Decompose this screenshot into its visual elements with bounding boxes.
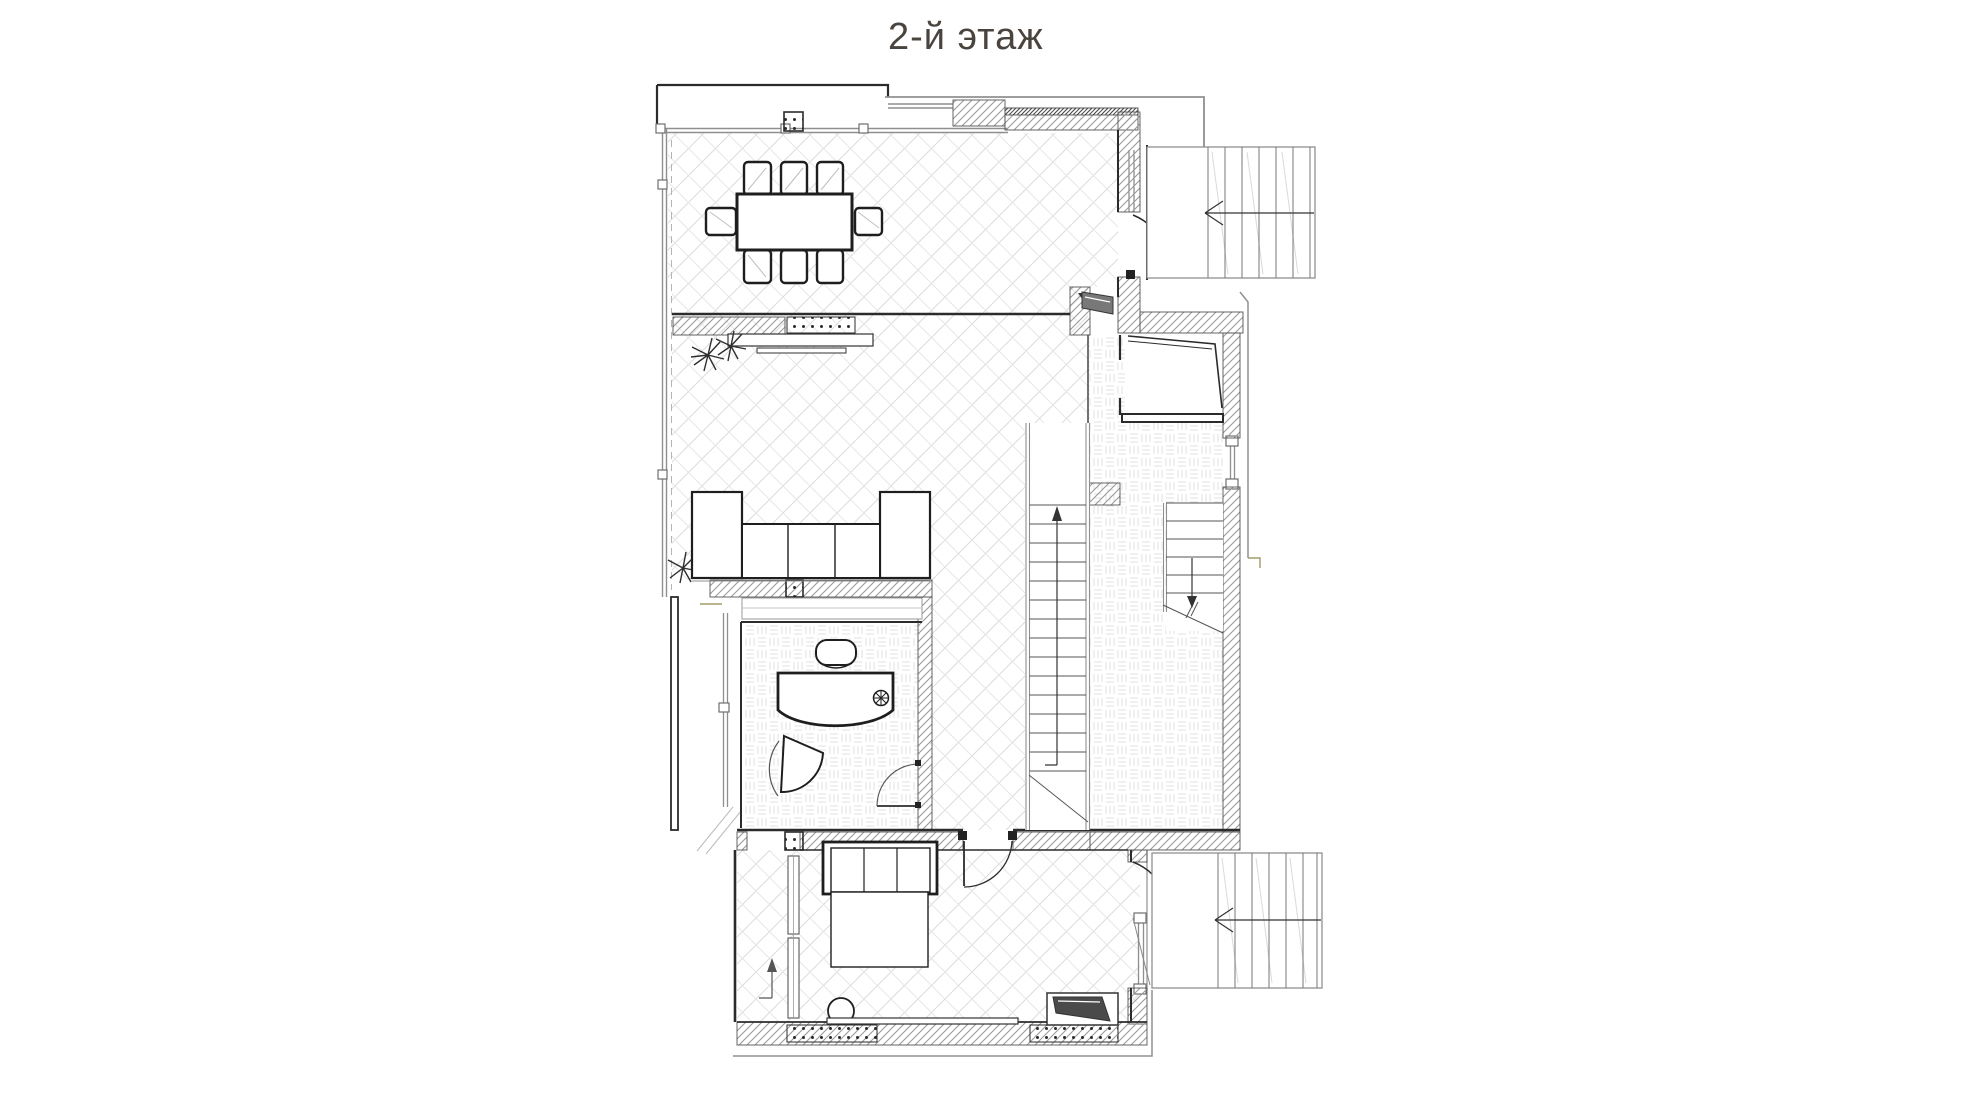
office-outer-wall-left bbox=[671, 597, 678, 830]
wall-hall-left-stub bbox=[1088, 483, 1120, 505]
canopy-lines bbox=[697, 807, 741, 854]
column-office-top bbox=[786, 580, 803, 597]
bedroom-console bbox=[827, 1018, 1018, 1024]
stair-external-bottom-right bbox=[1152, 853, 1322, 988]
alcove-sill-bar bbox=[1122, 414, 1223, 422]
hall-window-right bbox=[1231, 442, 1235, 483]
bed-body bbox=[831, 892, 928, 967]
floor-plan bbox=[0, 0, 1980, 1114]
terrace-mid-floor bbox=[672, 287, 1088, 423]
wall-right-mid bbox=[1118, 277, 1140, 333]
sofa-seat bbox=[742, 524, 880, 578]
terrace-glass-top bbox=[661, 129, 1008, 133]
wall-right-upper bbox=[1118, 112, 1140, 212]
terrace-strip-floor bbox=[930, 580, 1025, 830]
column-bedroom-top bbox=[785, 832, 803, 850]
radiator-terrace bbox=[787, 317, 855, 333]
terrace-glass-left bbox=[663, 128, 667, 597]
wall-office-right bbox=[918, 597, 932, 830]
sofa-side-table-left bbox=[692, 492, 742, 578]
wall-right-hall-lower bbox=[1223, 487, 1240, 832]
wall-bedroom-top-left bbox=[737, 832, 747, 850]
desk-fan bbox=[874, 691, 889, 706]
wall-bedroom-top-b bbox=[1013, 832, 1090, 850]
dining-table bbox=[737, 194, 852, 250]
wall-hall-bottom bbox=[1090, 832, 1240, 850]
wall-top-step bbox=[953, 100, 1005, 126]
wall-alcove-top bbox=[1140, 312, 1243, 333]
bed-headboard-panels bbox=[831, 848, 930, 892]
wall-office-top bbox=[710, 580, 932, 597]
column-terrace-top bbox=[784, 112, 803, 131]
office-chair bbox=[816, 640, 856, 668]
sofa-side-table-right bbox=[880, 492, 930, 578]
wall-right-hall-upper bbox=[1223, 333, 1240, 438]
boundary-step-olive bbox=[1248, 558, 1260, 568]
stair-external-top-right bbox=[1147, 147, 1315, 278]
terrace-glass-step bbox=[888, 104, 953, 108]
door-hinge bbox=[1126, 270, 1135, 279]
page: 2-й этаж bbox=[0, 0, 1980, 1114]
stair-central bbox=[1025, 423, 1090, 830]
stair-hall-upper-flight bbox=[1163, 503, 1223, 633]
wall-terrace-parapet bbox=[673, 317, 785, 335]
radiator-bedroom-right bbox=[1030, 1025, 1118, 1042]
radiator-bedroom-left bbox=[787, 1025, 877, 1042]
window-alcove-floor bbox=[1125, 335, 1223, 415]
